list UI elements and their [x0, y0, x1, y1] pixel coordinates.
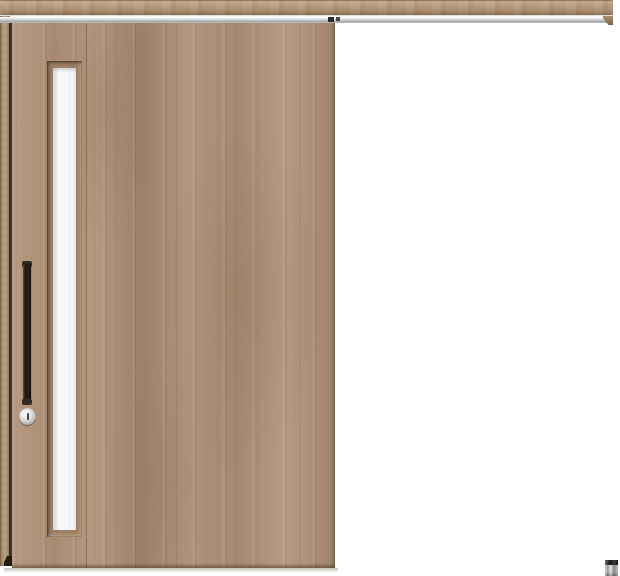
- hanger-rail-fascia: [0, 0, 613, 15]
- sliding-door-panel: [12, 20, 335, 568]
- track-roller-stop: [336, 17, 340, 21]
- floor-guide: [605, 560, 618, 576]
- floor-guide-body: [605, 565, 618, 576]
- handle-bottom-mount: [22, 399, 32, 405]
- sliding-door-product-photo: [0, 0, 620, 576]
- glass-slit-window: [53, 68, 76, 530]
- jamb-gap-shadow: [9, 20, 12, 566]
- door-floor-shadow: [4, 568, 338, 573]
- stile-joint-line: [86, 20, 87, 568]
- thumb-turn-lock: [19, 408, 36, 425]
- door-bar-handle: [23, 264, 31, 403]
- glass-slit-frame: [47, 61, 82, 537]
- door-bottom-edge: [12, 563, 335, 568]
- track-stopper-icon: [328, 17, 334, 22]
- hanger-metal-track: [0, 17, 611, 23]
- lock-slot: [27, 413, 29, 420]
